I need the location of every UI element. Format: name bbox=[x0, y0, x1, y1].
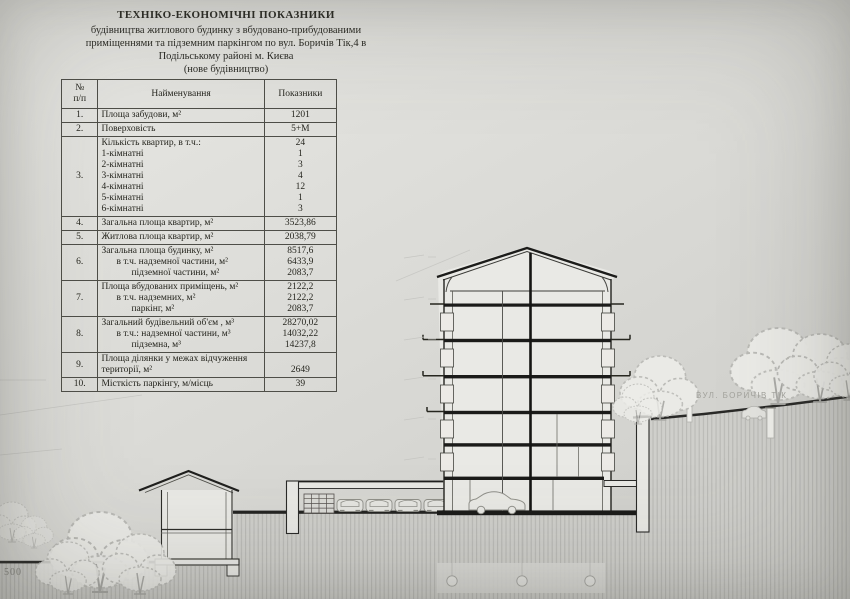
site-section-drawing: ВУЛ. БОРИЧІВ ТІК bbox=[0, 0, 850, 599]
building-section bbox=[423, 247, 652, 532]
street-name-label: ВУЛ. БОРИЧІВ ТІК bbox=[696, 391, 787, 400]
retaining-wall bbox=[637, 416, 650, 532]
right-link-slab bbox=[604, 481, 640, 487]
ventilation-grille bbox=[304, 494, 334, 513]
level-marks bbox=[404, 255, 436, 460]
photographed-drawing-sheet: ТЕХНІКО-ЕКОНОМІЧНІ ПОКАЗНИКИ будівництва… bbox=[0, 0, 850, 599]
scale-label: 500 bbox=[4, 567, 22, 578]
construction-lines bbox=[0, 250, 470, 455]
